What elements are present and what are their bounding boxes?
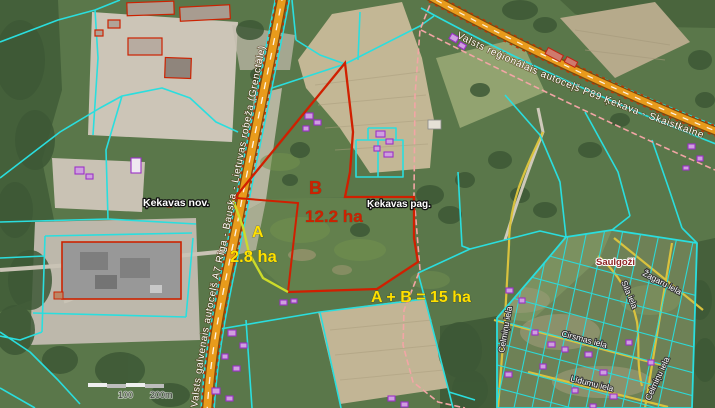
parish-label: Ķekavas pag.	[367, 199, 431, 210]
warehouse	[54, 242, 181, 299]
total-area-label: A + B = 15 ha	[371, 289, 471, 306]
area-a-letter-label: A	[252, 224, 264, 241]
map-canvas[interactable]: 100 200m Ķekavas nov. Ķekavas pag. A 2.8…	[0, 0, 715, 408]
village-label: Saulgoži	[596, 257, 635, 268]
area-a-size-label: 2.8 ha	[230, 248, 278, 266]
scale-label-200m: 200m	[150, 390, 173, 400]
area-b-letter-label: B	[309, 178, 322, 198]
barn-building	[428, 120, 441, 129]
municipality-label: Ķekavas nov.	[143, 197, 209, 209]
area-b-size-label: 12.2 ha	[305, 207, 363, 226]
map-svg: 100 200m Ķekavas nov. Ķekavas pag. A 2.8…	[0, 0, 715, 408]
scale-label-100: 100	[118, 390, 133, 400]
